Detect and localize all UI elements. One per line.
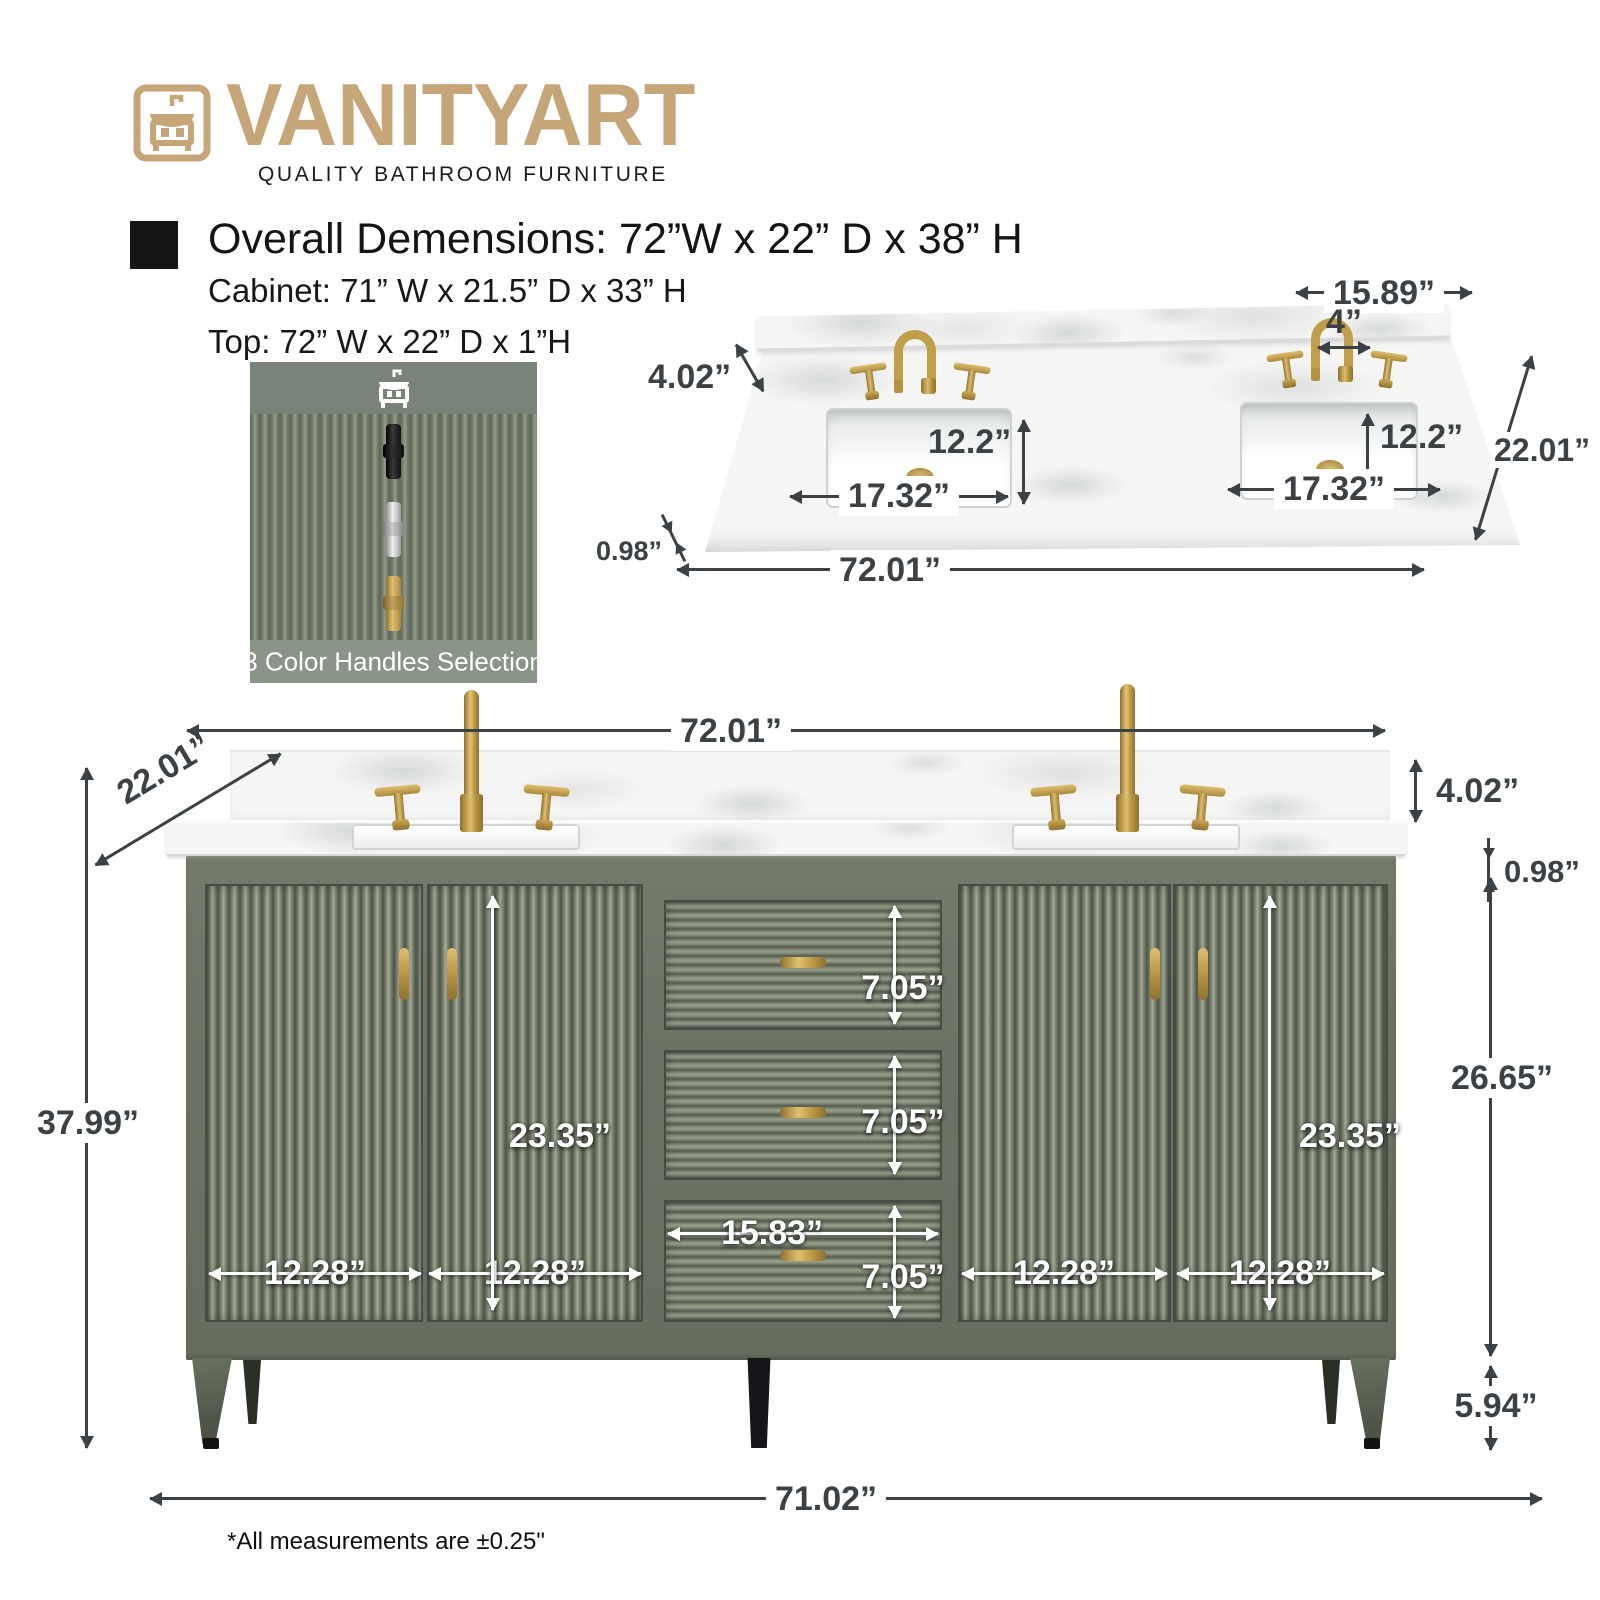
leg-center — [746, 1358, 772, 1448]
dim-top-thickness-label: 0.98” — [596, 538, 662, 565]
handles-panel-caption-bar: 3 Color Handles Selection — [250, 640, 537, 683]
dim-front-thickness-label: 0.98” — [1504, 856, 1580, 887]
drawer-handle — [780, 957, 826, 968]
dim-top-thickness-arrow — [661, 514, 686, 562]
faucet-spout-tip — [894, 380, 903, 393]
footnote: *All measurements are ±0.25" — [227, 1528, 545, 1556]
dim-top-faucet-spread-label: 4” — [1326, 305, 1362, 339]
heading-cabinet: Cabinet: 71” W x 21.5” D x 33” H — [208, 272, 687, 310]
dim-top-sink-depth-left-label: 12.2” — [928, 425, 1011, 459]
dim-door-width-label: 12.28” — [484, 1256, 586, 1290]
dim-door-height-arrow — [491, 896, 494, 1310]
dim-top-sink-width-right-label: 17.32” — [1274, 469, 1394, 509]
leg-rear-left — [243, 1360, 261, 1424]
faucet-spout-base — [460, 794, 483, 832]
dim-door-width-label: 12.28” — [1229, 1256, 1331, 1290]
brand-tagline: QUALITY BATHROOM FURNITURE — [258, 163, 668, 187]
dim-drawer-height-label: 7.05” — [861, 1260, 944, 1294]
faucet-front-right — [1028, 682, 1228, 832]
vanity-icon — [369, 367, 419, 411]
handles-selection-panel: 3 Color Handles Selection — [250, 362, 537, 683]
dim-front-backsplash-arrow — [1414, 760, 1417, 822]
handle-option-chrome — [386, 502, 401, 557]
dim-door-height-label: 23.35” — [509, 1119, 611, 1153]
dim-drawer-width-label: 15.83” — [721, 1216, 823, 1250]
heading-bullet — [130, 221, 178, 269]
door-handle — [1198, 948, 1208, 1000]
door-handle — [399, 948, 409, 1000]
faucet-spout-tip — [1311, 368, 1320, 381]
faucet-handle-hot — [949, 362, 991, 404]
dim-door-height-label: 23.35” — [1299, 1119, 1401, 1153]
handle-option-gold — [386, 576, 401, 631]
door-handle — [447, 948, 457, 1000]
door-handle — [1150, 948, 1160, 1000]
faucet-handle-cold — [374, 784, 424, 834]
dim-front-cabinet-height-arrow — [1489, 878, 1492, 1356]
dim-top-sink-width-left-label: 17.32” — [839, 476, 959, 516]
dim-front-backsplash-label: 4.02” — [1436, 774, 1519, 808]
leg-front-left — [192, 1358, 232, 1444]
faucet-handle-cold — [1266, 350, 1308, 392]
faucet-spout-base — [1116, 794, 1139, 832]
heading-top: Top: 72” W x 22” D x 1”H — [208, 323, 571, 361]
faucet-spout-base — [1338, 366, 1353, 382]
dim-front-height-label: 37.99” — [28, 1103, 148, 1143]
faucet-spout-base — [921, 378, 936, 394]
leg-foot-left — [203, 1438, 219, 1449]
dim-door-width-label: 12.28” — [1013, 1256, 1115, 1290]
leg-rear-right — [1322, 1360, 1340, 1424]
brand-name: VANITYART — [226, 64, 695, 166]
leg-foot-right — [1364, 1438, 1380, 1449]
dim-front-width-label: 72.01” — [671, 711, 791, 751]
dim-front-base-width-label: 71.02” — [766, 1479, 886, 1519]
dim-door-height-arrow — [1268, 896, 1271, 1310]
faucet-handle-hot — [1176, 784, 1226, 834]
page: VANITYART QUALITY BATHROOM FURNITURE Ove… — [0, 0, 1600, 1600]
faucet-handle-cold — [1030, 784, 1080, 834]
faucet-handle-cold — [849, 362, 891, 404]
leg-front-right — [1350, 1358, 1390, 1444]
dim-door-width-label: 12.28” — [264, 1256, 366, 1290]
handles-panel-header — [250, 362, 537, 414]
dim-top-width-arrow — [677, 568, 1424, 571]
dim-top-width-label: 72.01” — [830, 550, 950, 590]
faucet-front-left — [372, 688, 572, 833]
handles-panel-caption: 3 Color Handles Selection — [243, 646, 544, 677]
faucet-handle-hot — [520, 784, 570, 834]
vanityart-logo-icon — [133, 84, 211, 162]
faucet-handle-hot — [1366, 350, 1408, 392]
handle-option-black — [386, 424, 401, 479]
dim-top-backsplash-label: 4.02” — [648, 360, 731, 394]
dim-drawer-height-label: 7.05” — [861, 1105, 944, 1139]
dim-top-faucet-spread-arrow — [1318, 346, 1370, 349]
faucet-gooseneck-spout — [894, 330, 936, 382]
dim-front-leg-height-label: 5.94” — [1445, 1386, 1546, 1426]
dim-top-sink-depth-right-label: 12.2” — [1380, 420, 1463, 454]
faucet-top-view-left — [845, 330, 985, 402]
dim-top-sink-depth-left-arrow — [1022, 420, 1025, 504]
heading-overall: Overall Demensions: 72”W x 22” D x 38” H — [208, 215, 1023, 264]
dim-drawer-height-label: 7.05” — [861, 971, 944, 1005]
drawer-handle — [780, 1107, 826, 1118]
dim-top-depth-label: 22.01” — [1490, 432, 1594, 468]
dim-front-cabinet-height-label: 26.65” — [1442, 1058, 1562, 1098]
dim-front-depth-label: 22.01” — [112, 729, 217, 811]
